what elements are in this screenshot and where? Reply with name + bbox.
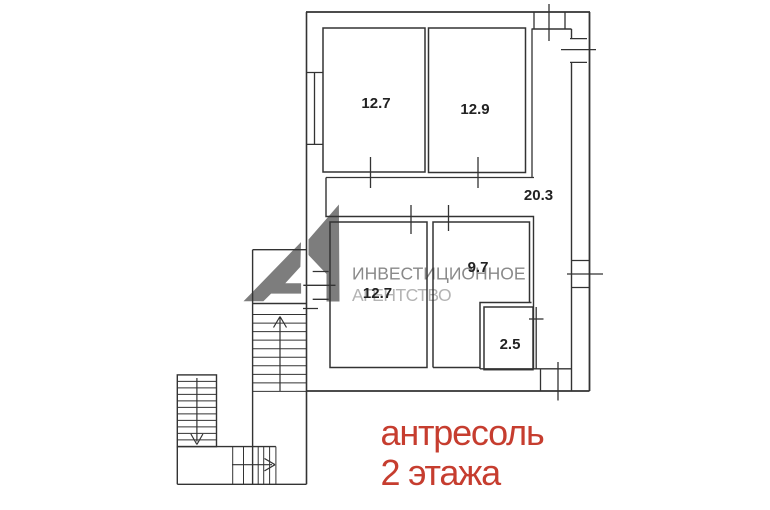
svg-text:12.7: 12.7 bbox=[363, 285, 392, 302]
svg-text:2 этажа: 2 этажа bbox=[381, 452, 503, 493]
svg-text:20.3: 20.3 bbox=[524, 187, 553, 204]
svg-text:ИНВЕСТИЦИОННОЕ: ИНВЕСТИЦИОННОЕ bbox=[352, 264, 526, 284]
svg-text:9.7: 9.7 bbox=[468, 259, 489, 276]
svg-text:антресоль: антресоль bbox=[381, 412, 544, 453]
svg-text:12.7: 12.7 bbox=[361, 95, 390, 112]
svg-text:12.9: 12.9 bbox=[460, 101, 489, 118]
svg-text:2.5: 2.5 bbox=[500, 336, 521, 353]
